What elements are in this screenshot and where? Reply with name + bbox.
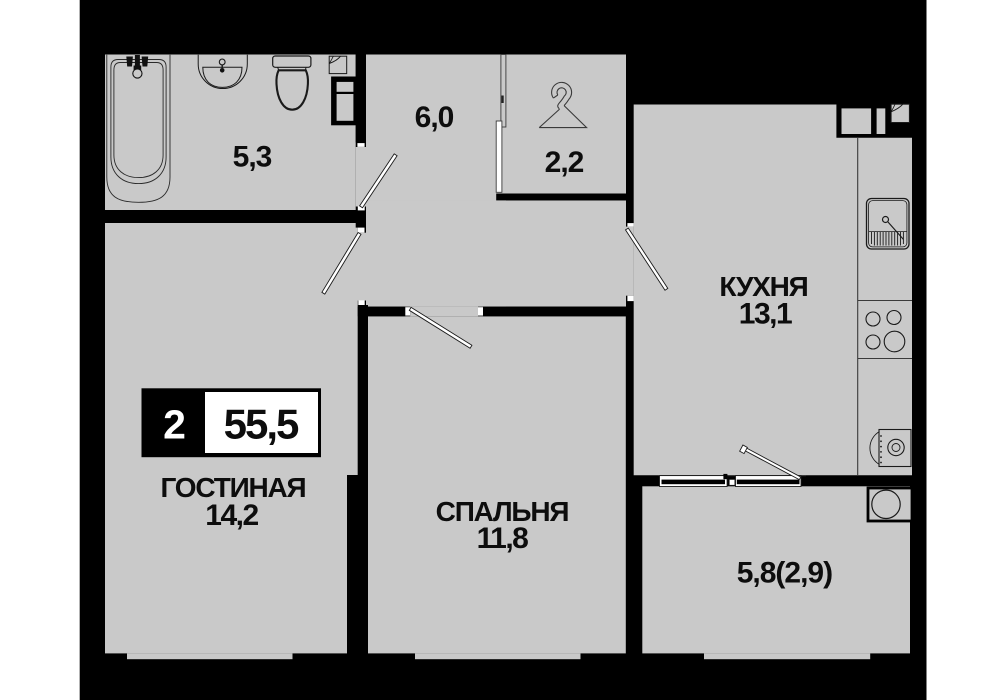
svg-text:14,2: 14,2 <box>205 499 258 532</box>
svg-text:5,8(2,9): 5,8(2,9) <box>737 557 832 590</box>
svg-text:55,5: 55,5 <box>224 401 299 448</box>
svg-text:2: 2 <box>163 402 186 448</box>
svg-text:13,1: 13,1 <box>739 298 792 331</box>
svg-text:5,3: 5,3 <box>233 141 272 174</box>
svg-text:6,0: 6,0 <box>415 101 454 134</box>
svg-text:2,2: 2,2 <box>545 146 584 179</box>
svg-text:11,8: 11,8 <box>477 522 529 555</box>
